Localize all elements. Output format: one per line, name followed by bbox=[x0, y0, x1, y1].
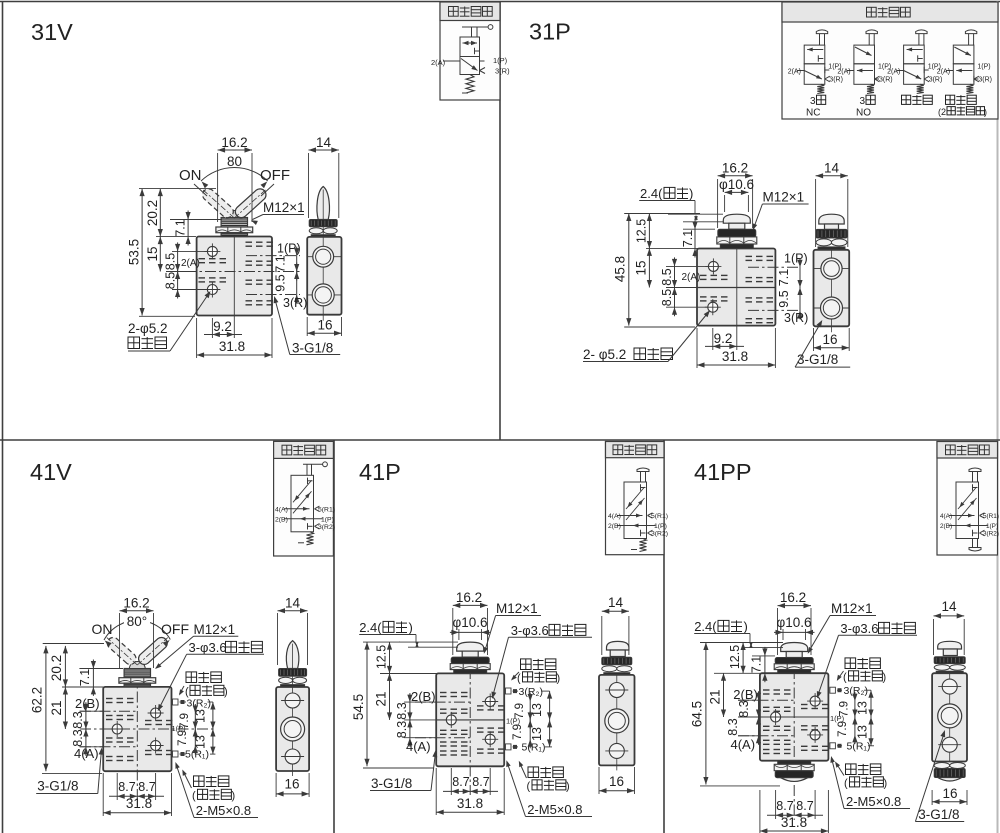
svg-text:8.3: 8.3 bbox=[395, 702, 409, 719]
svg-text:64.5: 64.5 bbox=[690, 701, 705, 727]
svg-text:5(R₁): 5(R₁) bbox=[185, 749, 209, 761]
svg-text:16.2: 16.2 bbox=[722, 161, 748, 176]
svg-text:4(A): 4(A) bbox=[406, 739, 431, 754]
svg-text:13: 13 bbox=[530, 703, 544, 717]
svg-text:31P: 31P bbox=[529, 19, 571, 45]
svg-text:16: 16 bbox=[822, 332, 837, 347]
svg-text:7.9: 7.9 bbox=[839, 701, 851, 717]
svg-text:M12×1: M12×1 bbox=[831, 601, 873, 616]
svg-text:13: 13 bbox=[194, 709, 208, 723]
svg-text:80: 80 bbox=[227, 154, 242, 169]
svg-text:2(B): 2(B) bbox=[75, 696, 100, 711]
svg-text:31.8: 31.8 bbox=[126, 796, 152, 811]
svg-text:9.5: 9.5 bbox=[274, 274, 288, 291]
svg-text:62.2: 62.2 bbox=[30, 687, 45, 713]
svg-text:12.5: 12.5 bbox=[635, 219, 649, 243]
svg-text:3-G1/8: 3-G1/8 bbox=[371, 776, 412, 791]
svg-text:3(R): 3(R) bbox=[929, 77, 943, 84]
svg-text:41PP: 41PP bbox=[694, 459, 752, 485]
svg-text:3(R): 3(R) bbox=[879, 77, 893, 84]
svg-text:2(A): 2(A) bbox=[181, 258, 200, 269]
svg-text:16: 16 bbox=[609, 774, 624, 789]
svg-text:31.8: 31.8 bbox=[781, 815, 807, 830]
svg-text:φ10.6: φ10.6 bbox=[776, 615, 811, 630]
svg-text:): ) bbox=[566, 781, 570, 793]
svg-text:16.2: 16.2 bbox=[221, 135, 247, 150]
svg-text:(: ( bbox=[844, 778, 848, 790]
svg-text:1(P): 1(P) bbox=[977, 64, 990, 71]
svg-text:3(R2): 3(R2) bbox=[651, 531, 668, 538]
svg-text:31.8: 31.8 bbox=[457, 796, 483, 811]
svg-text:2(A): 2(A) bbox=[682, 272, 701, 283]
svg-text:5(R1): 5(R1) bbox=[983, 513, 999, 520]
svg-text:4(A): 4(A) bbox=[608, 513, 621, 520]
svg-text:φ10.6: φ10.6 bbox=[719, 177, 754, 192]
svg-text:14: 14 bbox=[824, 161, 840, 176]
svg-text:7.9: 7.9 bbox=[514, 703, 526, 719]
svg-text:41V: 41V bbox=[30, 459, 72, 485]
svg-text:16: 16 bbox=[317, 318, 332, 333]
svg-text:8.7: 8.7 bbox=[118, 780, 135, 794]
svg-text:5(R1): 5(R1) bbox=[651, 513, 668, 520]
svg-text:8.7: 8.7 bbox=[776, 799, 793, 813]
svg-text:21: 21 bbox=[708, 689, 723, 704]
svg-text:9.2: 9.2 bbox=[213, 319, 232, 334]
svg-text:16.2: 16.2 bbox=[456, 590, 482, 605]
svg-text:3-G1/8: 3-G1/8 bbox=[292, 341, 333, 356]
svg-text:7.1: 7.1 bbox=[274, 255, 288, 272]
svg-text:1(P): 1(P) bbox=[321, 516, 334, 523]
svg-text:2-M5×0.8: 2-M5×0.8 bbox=[196, 803, 251, 818]
svg-text:3(R2): 3(R2) bbox=[318, 524, 335, 531]
svg-text:8.7: 8.7 bbox=[472, 775, 489, 789]
svg-text:4(A): 4(A) bbox=[74, 746, 99, 761]
svg-text:16.2: 16.2 bbox=[780, 590, 806, 605]
svg-text:3-G1/8: 3-G1/8 bbox=[797, 352, 838, 367]
svg-text:7.1: 7.1 bbox=[174, 219, 188, 236]
svg-text:): ) bbox=[232, 790, 236, 802]
svg-text:8.3: 8.3 bbox=[71, 711, 85, 728]
svg-text:8.3: 8.3 bbox=[71, 729, 85, 746]
svg-text:3-φ3.6: 3-φ3.6 bbox=[840, 621, 878, 636]
svg-text:9.5: 9.5 bbox=[777, 290, 791, 307]
svg-text:54.5: 54.5 bbox=[351, 694, 366, 720]
svg-text:7.1: 7.1 bbox=[78, 669, 92, 686]
svg-text:1(P): 1(P) bbox=[784, 252, 808, 266]
svg-text:): ) bbox=[744, 619, 748, 634]
svg-text:7.1: 7.1 bbox=[750, 656, 764, 673]
svg-text:16: 16 bbox=[284, 777, 299, 792]
svg-text:M12×1: M12×1 bbox=[496, 601, 538, 616]
svg-text:3(R): 3(R) bbox=[495, 67, 510, 76]
svg-text:OFF: OFF bbox=[161, 621, 189, 637]
svg-text:8.3: 8.3 bbox=[737, 700, 751, 717]
svg-text:3(R): 3(R) bbox=[283, 296, 307, 310]
svg-text:(: ( bbox=[843, 672, 847, 684]
svg-text:8.3: 8.3 bbox=[395, 721, 409, 738]
svg-text:1(P): 1(P) bbox=[493, 56, 508, 65]
svg-text:8.5: 8.5 bbox=[660, 268, 674, 285]
svg-text:3: 3 bbox=[860, 96, 866, 107]
svg-text:): ) bbox=[224, 686, 228, 698]
svg-text:15: 15 bbox=[145, 246, 160, 261]
svg-text:3(R₂): 3(R₂) bbox=[187, 698, 212, 710]
svg-text:3-G1/8: 3-G1/8 bbox=[918, 807, 959, 822]
svg-text:ON: ON bbox=[179, 167, 202, 184]
svg-text:5(R1): 5(R1) bbox=[318, 506, 335, 513]
svg-text:2- φ5.2: 2- φ5.2 bbox=[583, 347, 626, 362]
svg-text:2(B): 2(B) bbox=[940, 523, 952, 530]
svg-text:NC: NC bbox=[806, 108, 820, 119]
svg-text:12.5: 12.5 bbox=[728, 645, 742, 669]
svg-text:31.8: 31.8 bbox=[219, 339, 245, 354]
svg-text:7.1: 7.1 bbox=[681, 230, 695, 247]
svg-text:3(R2): 3(R2) bbox=[983, 531, 999, 538]
svg-text:80°: 80° bbox=[127, 614, 147, 629]
svg-text:): ) bbox=[409, 620, 413, 635]
svg-text:31V: 31V bbox=[31, 19, 73, 45]
svg-text:8.5: 8.5 bbox=[660, 289, 674, 306]
svg-text:): ) bbox=[884, 778, 888, 790]
svg-text:4(A): 4(A) bbox=[940, 513, 952, 520]
svg-text:8.7: 8.7 bbox=[452, 775, 469, 789]
svg-text:7.9: 7.9 bbox=[179, 713, 191, 729]
svg-text:2(A): 2(A) bbox=[431, 58, 446, 67]
svg-text:3(R): 3(R) bbox=[784, 311, 808, 325]
svg-text:2(A): 2(A) bbox=[837, 69, 850, 76]
svg-text:13: 13 bbox=[856, 725, 870, 739]
svg-text:2(A): 2(A) bbox=[788, 69, 801, 76]
svg-text:3(R): 3(R) bbox=[978, 77, 992, 84]
svg-text:8.3: 8.3 bbox=[726, 718, 740, 735]
svg-text:31.8: 31.8 bbox=[722, 349, 748, 364]
svg-text:13: 13 bbox=[856, 701, 870, 715]
svg-text:12.5: 12.5 bbox=[375, 645, 389, 669]
svg-text:4(A): 4(A) bbox=[731, 737, 756, 752]
svg-text:53.5: 53.5 bbox=[127, 239, 142, 265]
svg-text:(: ( bbox=[192, 790, 196, 802]
svg-text:M12×1: M12×1 bbox=[194, 622, 236, 637]
svg-text:13: 13 bbox=[194, 735, 208, 749]
svg-text:8.5: 8.5 bbox=[164, 272, 178, 289]
svg-text:2(A): 2(A) bbox=[887, 69, 900, 76]
svg-text:8.7: 8.7 bbox=[138, 780, 155, 794]
svg-text:2.4(: 2.4( bbox=[694, 619, 717, 634]
svg-text:8.5: 8.5 bbox=[164, 253, 178, 270]
svg-text:): ) bbox=[557, 673, 561, 685]
svg-text:2(B): 2(B) bbox=[608, 523, 621, 530]
svg-text:2.4(: 2.4( bbox=[359, 620, 382, 635]
svg-text:3-φ3.6: 3-φ3.6 bbox=[189, 640, 227, 655]
svg-text:3-φ3.6: 3-φ3.6 bbox=[511, 623, 549, 638]
svg-text:5(R₁): 5(R₁) bbox=[522, 742, 546, 754]
svg-text:3(R): 3(R) bbox=[829, 77, 843, 84]
svg-text:45.8: 45.8 bbox=[613, 256, 628, 282]
svg-text:16: 16 bbox=[942, 786, 957, 801]
svg-text:4(A): 4(A) bbox=[275, 506, 288, 513]
svg-text:φ10.6: φ10.6 bbox=[452, 615, 487, 630]
svg-text:3: 3 bbox=[810, 96, 816, 107]
svg-text:2(A): 2(A) bbox=[937, 69, 950, 76]
svg-text:13: 13 bbox=[530, 727, 544, 741]
svg-text:2.4(: 2.4( bbox=[640, 186, 663, 201]
svg-text:20.2: 20.2 bbox=[145, 200, 160, 226]
svg-text:7.9: 7.9 bbox=[512, 724, 524, 740]
svg-text:2-M5×0.8: 2-M5×0.8 bbox=[527, 802, 582, 817]
svg-text:): ) bbox=[883, 672, 887, 684]
svg-text:(: ( bbox=[517, 673, 521, 685]
svg-text:14: 14 bbox=[941, 599, 957, 614]
svg-text:7.1: 7.1 bbox=[777, 269, 791, 286]
svg-text:21: 21 bbox=[374, 691, 389, 706]
svg-text:3-G1/8: 3-G1/8 bbox=[37, 779, 78, 794]
svg-text:14: 14 bbox=[316, 135, 332, 150]
svg-text:5(R₁): 5(R₁) bbox=[847, 741, 871, 753]
svg-text:9.2: 9.2 bbox=[714, 331, 733, 346]
svg-text:2-M5×0.8: 2-M5×0.8 bbox=[846, 794, 901, 809]
svg-text:14: 14 bbox=[608, 595, 624, 610]
svg-text:(: ( bbox=[185, 686, 189, 698]
svg-text:M12×1: M12×1 bbox=[763, 190, 805, 205]
svg-text:ON: ON bbox=[92, 621, 113, 637]
svg-text:1(P): 1(P) bbox=[986, 523, 998, 530]
svg-text:2(B): 2(B) bbox=[275, 516, 288, 523]
svg-text:NO: NO bbox=[856, 108, 871, 119]
svg-text:M12×1: M12×1 bbox=[263, 200, 305, 215]
svg-text:41P: 41P bbox=[359, 459, 401, 485]
svg-text:8.7: 8.7 bbox=[796, 799, 813, 813]
svg-text:(: ( bbox=[527, 781, 531, 793]
svg-text:14: 14 bbox=[285, 596, 301, 611]
svg-text:16.2: 16.2 bbox=[123, 596, 149, 611]
svg-text:1(P): 1(P) bbox=[654, 523, 667, 530]
svg-text:2-φ5.2: 2-φ5.2 bbox=[128, 321, 168, 336]
svg-text:): ) bbox=[984, 107, 987, 117]
svg-text:7.9: 7.9 bbox=[177, 730, 189, 746]
svg-text:20.2: 20.2 bbox=[49, 655, 64, 681]
svg-text:OFF: OFF bbox=[260, 167, 290, 184]
svg-text:): ) bbox=[689, 186, 693, 201]
svg-text:21: 21 bbox=[49, 700, 64, 715]
svg-text:15: 15 bbox=[634, 260, 649, 275]
svg-text:(2: (2 bbox=[938, 107, 946, 117]
svg-text:7.9: 7.9 bbox=[837, 721, 849, 737]
